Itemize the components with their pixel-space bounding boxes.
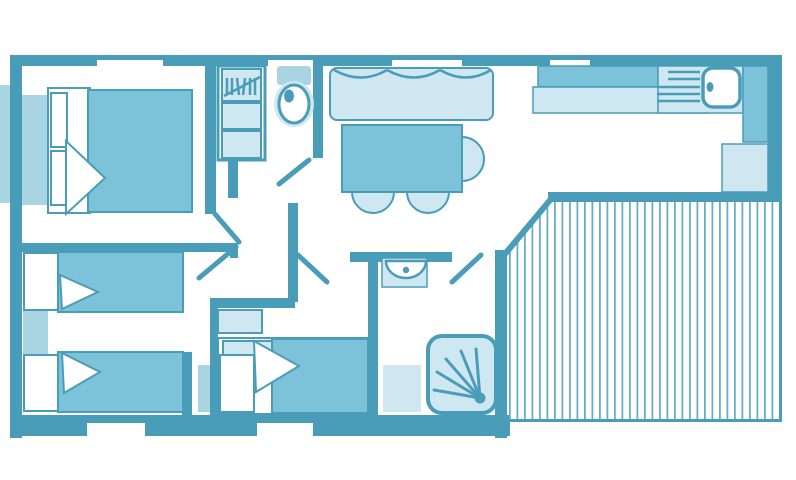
terrace-top-bar: [548, 192, 782, 202]
wall-right: [768, 55, 782, 202]
window-bottom-1: [87, 423, 145, 436]
shelf: [218, 310, 262, 333]
wardrobe-shelf: [222, 103, 261, 129]
duvet-bed-3: [272, 339, 368, 413]
kitchen-upper-cabinet: [538, 66, 658, 87]
wall-room3-top: [210, 298, 295, 308]
window-top-4: [550, 60, 590, 66]
wall-twin-top: [22, 243, 238, 252]
window-top-2: [268, 60, 315, 66]
dining-table: [342, 125, 462, 192]
floorplan-image: [0, 0, 796, 480]
sofa: [330, 68, 493, 120]
pillow-icon: [51, 93, 67, 147]
shower-tray-icon: [428, 336, 496, 413]
floorplan-svg: [0, 0, 796, 480]
terrace-right-edge: [779, 202, 782, 422]
pillow-icon: [24, 355, 58, 411]
bed-headboard-shelf: [22, 95, 48, 205]
wall-shower-left: [368, 252, 378, 415]
toilet-icon: [279, 85, 309, 123]
window-top-3: [392, 60, 462, 66]
bathroom-cabinet: [383, 365, 421, 412]
toilet-flush-dot: [284, 90, 294, 103]
window-top-1: [97, 60, 163, 66]
wardrobe: [218, 66, 265, 160]
duvet-double-bed: [88, 90, 192, 212]
terrace: [505, 192, 782, 422]
shower-drain-dot: [475, 393, 486, 404]
kitchen-low-cabinet: [722, 144, 768, 192]
pillow-icon: [220, 355, 254, 412]
terrace-bottom-edge: [505, 419, 782, 422]
deck-stripes: [509, 202, 779, 419]
basin-faucet-dot: [403, 267, 409, 273]
pillow-icon: [24, 253, 58, 310]
wc-room: [274, 66, 314, 127]
window-bottom-2: [257, 423, 313, 436]
wall-wc-right: [313, 58, 323, 158]
pillow-icon: [51, 151, 67, 205]
wardrobe-shelf: [222, 131, 261, 158]
kitchen-tall-cabinet: [743, 66, 768, 142]
sink-faucet-dot: [707, 82, 714, 92]
wall-room3-left: [210, 298, 218, 415]
wall-left: [10, 55, 22, 438]
left-window-glazing: [0, 85, 10, 203]
wall-wardrobe-stub: [228, 160, 238, 198]
wall-master-right: [205, 66, 216, 214]
wall-hall-center: [288, 203, 298, 302]
side-cabinet: [198, 365, 210, 412]
